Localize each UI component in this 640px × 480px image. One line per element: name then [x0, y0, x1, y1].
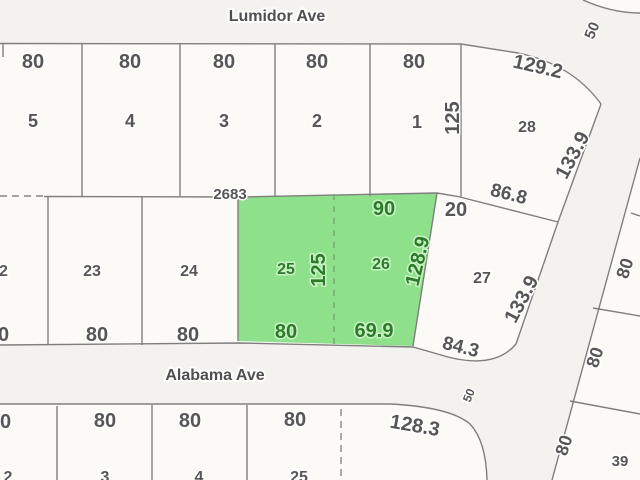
- lot-number: 4: [195, 469, 204, 480]
- lot-number: 27: [473, 270, 491, 287]
- dim-label: 80: [213, 51, 235, 73]
- middle-block-top-boundary: [44, 197, 238, 198]
- lot-number: 5: [28, 111, 38, 131]
- lot-number: 2: [312, 111, 322, 131]
- dim-label: 80: [22, 51, 44, 73]
- lot-number: 23: [83, 263, 101, 280]
- lot-number: 28: [518, 119, 536, 136]
- lot-number: 39: [612, 453, 629, 470]
- plat-number-label: 2683: [213, 186, 246, 203]
- street-width-label: 50: [581, 20, 603, 42]
- lot-number: 1: [412, 112, 422, 132]
- lot-number: 4: [125, 111, 135, 131]
- dim-label: 80: [177, 324, 199, 346]
- block-northeast-corner: [583, 0, 640, 13]
- street-label-alabama: Alabama Ave: [165, 367, 264, 384]
- lot-number: 3: [101, 469, 110, 480]
- dim-label: 80: [0, 324, 9, 346]
- dim-label: 80: [119, 51, 141, 73]
- parcel-dim-label: 125: [308, 253, 330, 286]
- lot-number: 25: [290, 469, 308, 480]
- street-label-lumidor: Lumidor Ave: [229, 8, 326, 25]
- lot-number: 2: [4, 469, 13, 480]
- street-width-label: 50: [460, 386, 478, 404]
- parcel-lot-number: 25: [277, 261, 295, 278]
- dim-label: 80: [284, 409, 306, 431]
- parcel-dim-label: 90: [373, 198, 395, 220]
- dim-label-depth: 125: [442, 101, 464, 134]
- dim-label: 80: [0, 411, 11, 433]
- parcel-dim-label: 80: [275, 321, 297, 343]
- dim-label: 80: [86, 324, 108, 346]
- plat-map-viewport: Lumidor Ave Alabama Ave 80 80 80 80 80 5…: [0, 0, 640, 480]
- dim-label: 20: [445, 199, 467, 221]
- lot-number: 22: [0, 263, 8, 280]
- lot-number: 24: [180, 263, 198, 280]
- dim-label: 80: [179, 410, 201, 432]
- parcel-lot-number: 26: [372, 256, 390, 273]
- plat-map: Lumidor Ave Alabama Ave 80 80 80 80 80 5…: [0, 0, 640, 480]
- dim-label: 80: [306, 51, 328, 73]
- dim-label: 80: [403, 51, 425, 73]
- parcel-dim-label: 69.9: [355, 320, 394, 342]
- dim-label: 80: [94, 410, 116, 432]
- lot-number: 3: [219, 111, 229, 131]
